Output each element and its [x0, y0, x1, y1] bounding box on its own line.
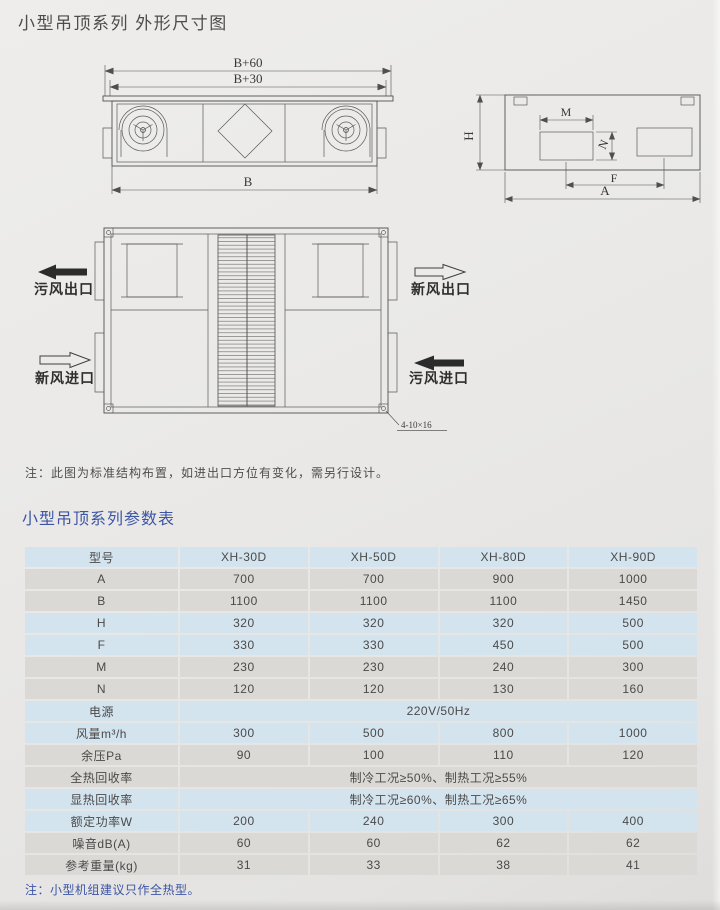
cell-value: 450	[440, 635, 568, 655]
cell-value: 120	[569, 745, 697, 765]
cell-value: 90	[180, 745, 308, 765]
cell-value: 110	[440, 745, 568, 765]
parameters-table-title: 小型吊顶系列参数表	[22, 505, 175, 529]
cell-value: 60	[180, 833, 308, 853]
side-body	[505, 95, 700, 170]
cell-value: 1000	[569, 723, 697, 743]
cell-value: 330	[180, 635, 308, 655]
cell-value: 120	[310, 679, 438, 699]
cell-value: 230	[310, 657, 438, 677]
cell-value: 33	[310, 855, 438, 875]
dim-label-f: F	[611, 171, 618, 185]
right-fan-box	[312, 244, 369, 297]
right-fan	[322, 106, 370, 157]
cell-value: 1100	[310, 591, 438, 611]
row-span-value: 制冷工况≥60%、制热工况≥65%	[180, 789, 697, 809]
cell-value: 320	[180, 613, 308, 633]
row-label: 参考重量(kg)	[25, 855, 178, 875]
row-label: 显热回收率	[25, 789, 178, 809]
dim-label-h: H	[462, 131, 476, 140]
cell-value: 230	[180, 657, 308, 677]
exhaust-out-label: 污风出口	[34, 281, 94, 298]
cell-value: 1000	[569, 569, 697, 589]
row-label: 电源	[25, 701, 178, 721]
cell-value: 240	[440, 657, 568, 677]
cell-value: 60	[310, 833, 438, 853]
left-fan	[119, 106, 167, 157]
collar-right-top	[388, 242, 397, 300]
column-header: XH-80D	[440, 547, 568, 567]
row-label: M	[25, 657, 178, 677]
cell-value: 160	[569, 679, 697, 699]
right-collar	[377, 128, 386, 158]
left-fan-box	[121, 244, 183, 297]
cell-value: 120	[180, 679, 308, 699]
page-edge-shadow	[0, 900, 720, 910]
cell-value: 500	[569, 635, 697, 655]
cell-value: 62	[440, 833, 568, 853]
page-edge-highlight	[712, 0, 720, 910]
exhaust-out-arrow	[38, 265, 87, 280]
row-label: 风量m³/h	[25, 723, 178, 743]
dim-label-a: A	[600, 183, 610, 198]
column-header: XH-30D	[180, 547, 308, 567]
dim-label-b60: B+60	[233, 56, 262, 70]
cell-value: 300	[180, 723, 308, 743]
cell-value: 240	[310, 811, 438, 831]
column-header: XH-50D	[310, 547, 438, 567]
exhaust-in-label: 污风进口	[409, 370, 469, 387]
cell-value: 800	[440, 723, 568, 743]
front-view-drawing: B+60 B+30	[85, 56, 415, 206]
cell-value: 700	[310, 569, 438, 589]
column-header: XH-90D	[569, 547, 697, 567]
fresh-out-label: 新风出口	[411, 281, 471, 298]
cell-value: 1100	[180, 591, 308, 611]
dim-label-m: M	[561, 105, 572, 119]
side-opening-left	[540, 132, 593, 160]
row-label: 余压Pa	[25, 745, 178, 765]
dim-label-b: B	[244, 174, 253, 189]
filter-diamond	[218, 104, 272, 158]
collar-left-top	[95, 242, 104, 300]
cell-value: 41	[569, 855, 697, 875]
cell-value: 700	[180, 569, 308, 589]
collar-right-bottom	[388, 333, 397, 392]
mounting-hole-spec: 4-10×16	[401, 420, 432, 430]
collar-left-bottom	[95, 333, 104, 392]
dim-label-b30: B+30	[233, 71, 262, 86]
cell-value: 1450	[569, 591, 697, 611]
catalog-page: 小型吊顶系列 外形尺寸图 B+60 B+30	[0, 0, 720, 910]
row-label: 噪音dB(A)	[25, 833, 178, 853]
fresh-in-arrow	[40, 353, 90, 368]
cell-value: 38	[440, 855, 568, 875]
row-label: B	[25, 591, 178, 611]
cell-value: 200	[180, 811, 308, 831]
cell-value: 31	[180, 855, 308, 875]
cell-value: 130	[440, 679, 568, 699]
cell-value: 320	[440, 613, 568, 633]
cell-value: 500	[310, 723, 438, 743]
row-label: A	[25, 569, 178, 589]
cell-value: 900	[440, 569, 568, 589]
diagram-note: 注：此图为标准结构布置，如进出口方位有变化，需另行设计。	[25, 464, 389, 481]
row-label: 全热回收率	[25, 767, 178, 787]
cell-value: 62	[569, 833, 697, 853]
top-view-drawing: 污风出口 新风进口 新风出口 污风进口 4-10×16	[30, 213, 480, 458]
model-header: 型号	[25, 547, 178, 567]
fresh-out-arrow	[415, 265, 465, 280]
side-view-drawing: H M N F A	[462, 82, 717, 207]
heat-exchanger-core	[218, 235, 275, 406]
row-span-value: 制冷工况≥50%、制热工况≥55%	[180, 767, 697, 787]
left-collar	[103, 128, 112, 158]
cell-value: 400	[569, 811, 697, 831]
row-label: N	[25, 679, 178, 699]
side-opening-right	[637, 128, 692, 156]
cell-value: 500	[569, 613, 697, 633]
cell-value: 300	[440, 811, 568, 831]
cell-value: 100	[310, 745, 438, 765]
row-label: 额定功率W	[25, 811, 178, 831]
top-plate	[103, 96, 393, 101]
table-note: 注：小型机组建议只作全热型。	[25, 881, 200, 898]
exhaust-in-arrow	[414, 356, 464, 371]
cell-value: 1100	[440, 591, 568, 611]
row-label: F	[25, 635, 178, 655]
parameters-table: 型号XH-30DXH-50DXH-80DXH-90DA7007009001000…	[25, 547, 697, 875]
fresh-in-label: 新风进口	[35, 370, 95, 387]
row-label: H	[25, 613, 178, 633]
cell-value: 320	[310, 613, 438, 633]
row-span-value: 220V/50Hz	[180, 701, 697, 721]
cell-value: 330	[310, 635, 438, 655]
page-title: 小型吊顶系列 外形尺寸图	[18, 9, 228, 34]
dim-label-n: N	[595, 137, 611, 151]
cell-value: 300	[569, 657, 697, 677]
